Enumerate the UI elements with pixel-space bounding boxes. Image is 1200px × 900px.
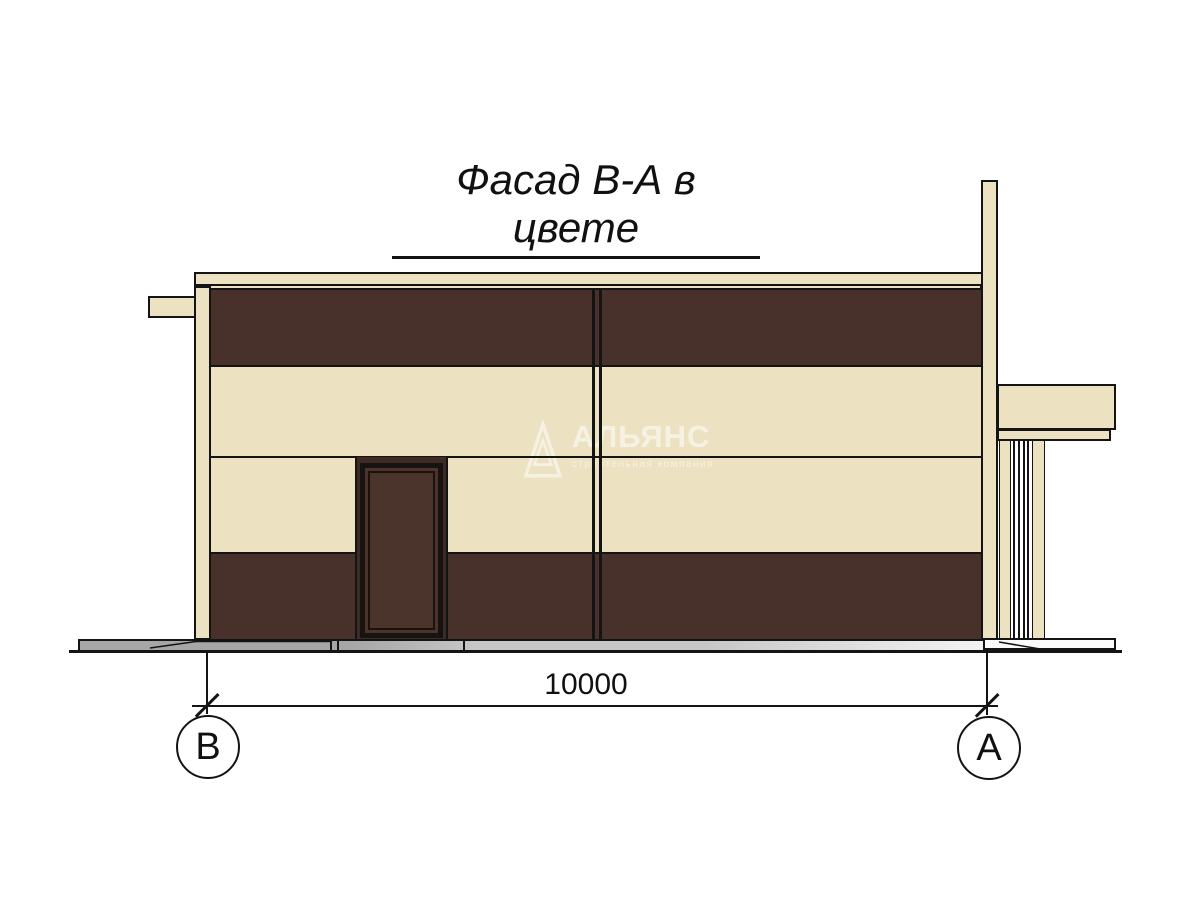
- column-slat-line: [1013, 441, 1015, 640]
- right-corner-post: [981, 180, 998, 640]
- axis-bubble-a: А: [957, 716, 1021, 780]
- ground-line: [69, 650, 1122, 653]
- door-panel: [368, 471, 435, 630]
- right-canopy: [997, 384, 1116, 430]
- column-slat-line: [1023, 441, 1025, 640]
- column-slat-left: [999, 441, 1011, 640]
- watermark-triangle-logo: [524, 417, 562, 483]
- column-slat-line: [1027, 441, 1029, 640]
- axis-label-b: В: [195, 726, 220, 769]
- column-slat-right: [1032, 441, 1045, 640]
- left-corner-pilaster: [194, 286, 211, 640]
- left-protruding-beam: [148, 296, 196, 318]
- dimension-value: 10000: [486, 668, 686, 702]
- door-frame-inner: [363, 466, 440, 635]
- facade-band-dark-top: [210, 288, 981, 366]
- facade-center-seam-right: [599, 288, 602, 639]
- facade-band-dark-bottom: [210, 553, 981, 639]
- elevation-drawing: Фасад В-А в цвете АЛЬЯНС строительная ко…: [0, 0, 1200, 900]
- band-joint-line-upper: [210, 365, 981, 367]
- porch-column-slats: [999, 441, 1043, 640]
- drawing-title: Фасад В-А в цвете: [392, 156, 760, 259]
- roof-edge-strip: [208, 284, 982, 290]
- band-joint-line-lower-right: [447, 552, 981, 554]
- axis-bubble-b: В: [176, 715, 240, 779]
- band-joint-line-middle: [210, 456, 981, 458]
- band-joint-line-lower-left: [210, 552, 356, 554]
- porch-platform: [983, 638, 1116, 650]
- facade-center-seam-left: [592, 288, 595, 639]
- column-slat-line: [1018, 441, 1020, 640]
- right-canopy-fascia: [997, 429, 1111, 441]
- axis-label-a: А: [976, 727, 1001, 770]
- dimension-line: [192, 705, 998, 707]
- watermark: АЛЬЯНС строительная компания: [524, 417, 714, 487]
- entrance-door: [360, 463, 443, 638]
